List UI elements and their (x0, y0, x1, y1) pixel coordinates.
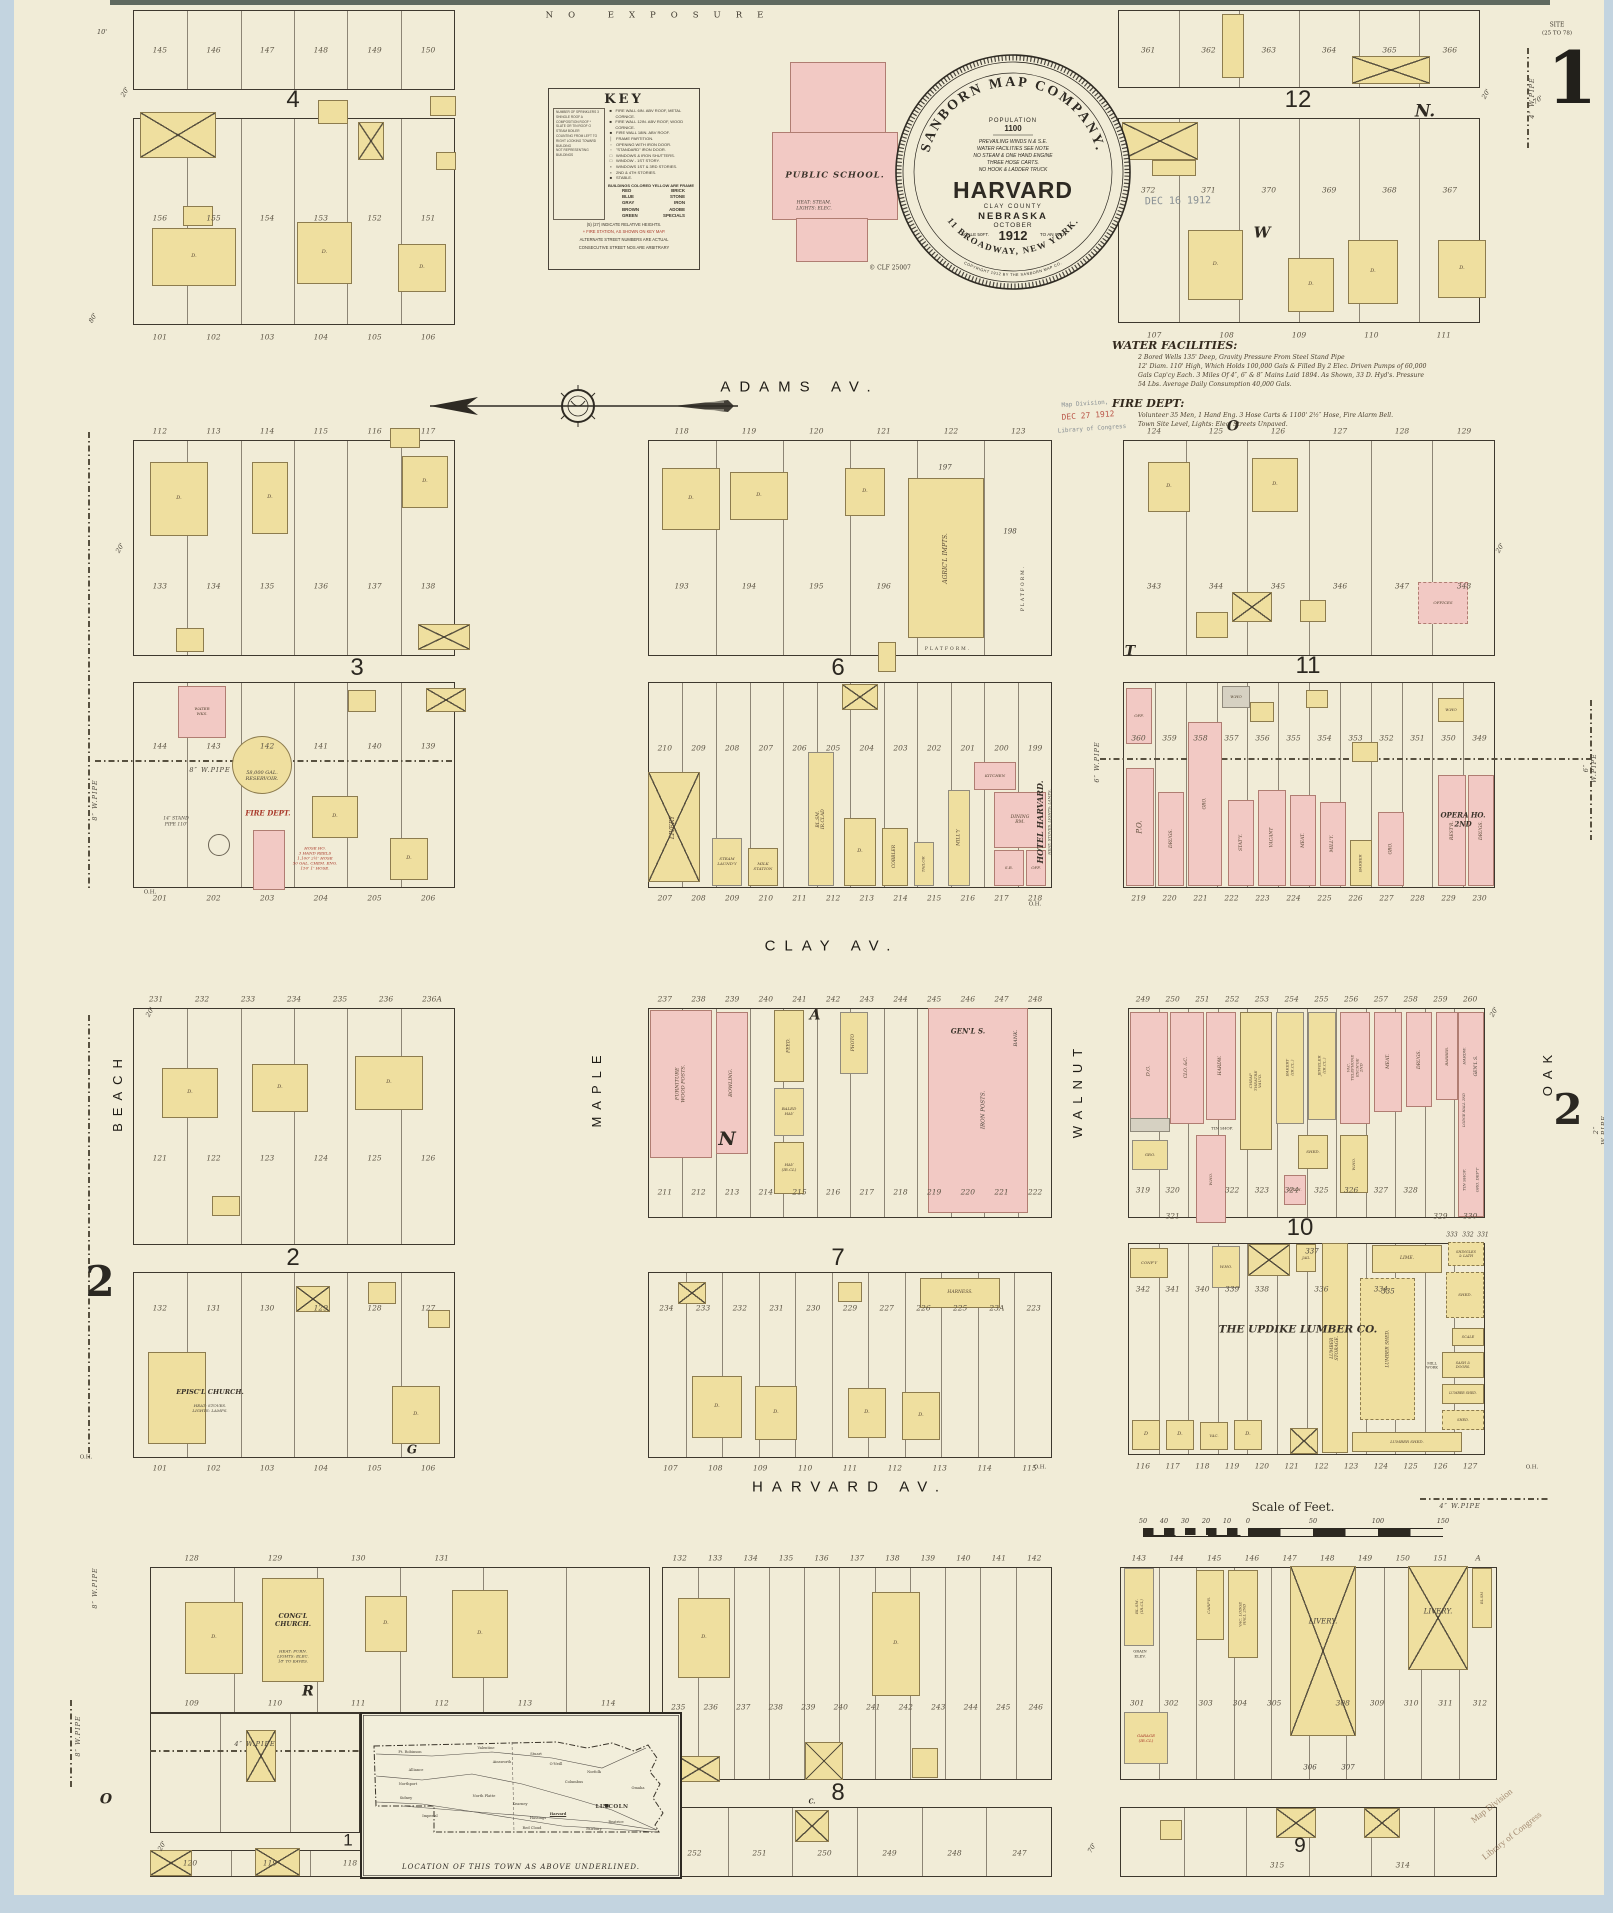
building-label: OFF. (1031, 866, 1040, 871)
building (436, 152, 456, 170)
building-label: D. (386, 1080, 391, 1086)
lot-number: 213 (860, 894, 874, 903)
lot-number: 357 (1224, 734, 1238, 743)
key-text: ■ (608, 175, 614, 181)
building (805, 1742, 843, 1780)
water-pipe-line (88, 1015, 90, 1458)
building-label: BL.SM (1480, 1592, 1484, 1604)
inset-town: Ainsworth (493, 1760, 512, 1764)
seal-info: WATER FACILITIES SEE NOTE (977, 146, 1050, 152)
lot-number: 337 (1305, 1248, 1318, 1257)
lot-number: 148 (1320, 1554, 1334, 1563)
lot-number: 128 (184, 1554, 198, 1563)
lot-number: 248 (947, 1849, 961, 1858)
lot-number: 302 (1164, 1699, 1178, 1708)
building: BL.SM. IR.CLAD (808, 752, 834, 886)
lot-number: 238 (691, 995, 705, 1004)
lot-divider (986, 1808, 987, 1876)
building (678, 1282, 706, 1304)
map-key: KEY NUMBER OF SPRINKLERS 3SHINGLE ROOF A… (548, 88, 700, 270)
public-school (796, 218, 868, 262)
lot-number: 110 (268, 1699, 282, 1708)
lot-divider (1247, 441, 1248, 655)
map-label: 20' (1480, 88, 1492, 101)
map-label: O.H. (144, 890, 156, 897)
building: VAC. (1200, 1422, 1228, 1450)
lot-number: 124 (314, 1154, 328, 1163)
lot-number: 323 (1255, 1186, 1269, 1195)
lot-number: 225 (1317, 894, 1331, 903)
lot-divider (1179, 11, 1180, 87)
sheet-number-right: 2 (1553, 1084, 1582, 1137)
building-label: D. (857, 849, 862, 855)
building-label: D. (1166, 484, 1171, 490)
lot-number: 139 (421, 742, 435, 751)
building: GRO. (1132, 1140, 1168, 1170)
lot-divider (734, 1568, 735, 1779)
lot-number: 348 (1457, 582, 1471, 591)
updike-lumber-label: THE UPDIKE LUMBER CO. (1219, 1323, 1378, 1336)
lot-number: 199 (1028, 744, 1042, 753)
lot-divider (566, 1568, 567, 1712)
lot-number: 329 (1433, 1212, 1447, 1221)
building-label: BARBER. (1445, 1047, 1450, 1066)
building: HAY (IR.CL) (774, 1142, 804, 1194)
building-label: KITCHEN (985, 774, 1005, 779)
sheet-number-left: 2 (85, 1256, 114, 1309)
building-label: D. (477, 1631, 482, 1637)
sanborn-map-sheet: 1451461471481491501561551541531521511011… (0, 0, 1613, 1913)
lot-number: 134 (206, 582, 220, 591)
lot-number: 131 (434, 1554, 448, 1563)
episcopal-church-label: EPISC'L CHURCH. (176, 1388, 244, 1396)
dwelling: D. (162, 1068, 218, 1118)
lot-number: 130 (260, 1304, 274, 1313)
lot-number: 197 (938, 464, 951, 473)
water-note-line: Gals Cap'cy Each. 3 Miles Of 4″, 6″ & 8″… (1138, 372, 1572, 381)
lot-number: 309 (1370, 1699, 1384, 1708)
building-label: P.O. (1136, 820, 1144, 833)
lumber-shed: LUMBER SHED. (1352, 1432, 1462, 1452)
lot-divider (187, 11, 188, 89)
block-number-6: 6 (831, 653, 844, 683)
lot-number: 143 (206, 742, 220, 751)
map-label: 20' (1488, 1006, 1500, 1019)
lot-number: 138 (421, 582, 435, 591)
lot-number: 103 (260, 1464, 274, 1473)
building-label: GRO. (1145, 1153, 1156, 1158)
lot-number: 255 (1314, 995, 1328, 1004)
building-label: W.HO. (1352, 1158, 1357, 1171)
lot-number: 209 (725, 894, 739, 903)
congregational-church-label: CONG'L CHURCH. (275, 1612, 311, 1628)
dwelling: D. (312, 796, 358, 838)
dwelling: D. (355, 1056, 423, 1110)
general-store-label: GEN'L S. (951, 1028, 985, 1037)
lot-number: 218 (893, 1188, 907, 1197)
lot-number: 145 (153, 46, 167, 55)
block-number-11: 11 (1296, 651, 1321, 681)
lot-number: 252 (687, 1849, 701, 1858)
building: TAILOR (914, 842, 934, 886)
lot-number: 126 (421, 1154, 435, 1163)
lot-number: 346 (1333, 582, 1347, 591)
water-pipe-label: 6″ W.PIPE (1582, 753, 1598, 783)
lot-number: 210 (759, 894, 773, 903)
lot-number: 252 (1225, 995, 1239, 1004)
scale-of-feet: Scale of Feet. 5040302010050100150 (1128, 1500, 1458, 1548)
building-label: SHED. (1458, 1293, 1471, 1298)
building-label: SCALE (1462, 1335, 1474, 1339)
inset-town: Columbus (565, 1780, 583, 1784)
lot-number: 240 (759, 995, 773, 1004)
seal-info: NO HOOK & LADDER TRUCK (979, 167, 1048, 173)
building: CLO. &C. (1170, 1012, 1204, 1124)
map-label: G (407, 1443, 417, 1458)
building-label: COBBLER (892, 845, 897, 868)
lot-number: 106 (421, 333, 435, 342)
inset-town: LINCOLN (595, 1804, 628, 1810)
lot-number: 312 (1473, 1699, 1487, 1708)
lot-number: 322 (1225, 1186, 1239, 1195)
building (1364, 1808, 1400, 1838)
building-label: LUMBER SHED. (1385, 1330, 1390, 1368)
building-label: VAC. TELEPHONE EXCH'GE 2ND (1346, 1054, 1363, 1082)
scale-tick: 50 (1139, 1517, 1147, 1525)
map-label: T (1125, 643, 1135, 661)
inset-town: Red Cloud (523, 1826, 542, 1830)
dwelling: D. (678, 1598, 730, 1678)
lot-number: 210 (658, 744, 672, 753)
building-label: BL.SM. (IR.CL) (1134, 1600, 1143, 1615)
building-label: MEAT. (1385, 1055, 1390, 1070)
building-label: D. (893, 1641, 898, 1647)
building-label: D. (1370, 269, 1375, 275)
lot-number: 118 (343, 1859, 357, 1868)
lot-number: 355 (1286, 734, 1300, 743)
map-label: HEAT: STOVES. LIGHTS: LAMPS. (1048, 789, 1053, 854)
map-label: TIN SHOP. (1211, 1126, 1233, 1131)
building (358, 122, 384, 160)
lot-divider (1184, 1808, 1185, 1876)
lot-divider (1432, 683, 1433, 887)
water-note-line: 12' Diam. 110' High, Which Holds 100,000… (1138, 363, 1572, 372)
lot-divider (220, 1714, 221, 1832)
map-label: HEAT: STEAM. LIGHTS: ELEC. (796, 200, 832, 211)
building-label: HARDW. (1218, 1056, 1223, 1075)
lot-number: 151 (421, 214, 435, 223)
lot-number: 111 (843, 1464, 857, 1473)
building-label: CLO. &C. (1184, 1057, 1189, 1078)
street-harvard-av: HARVARD AV. (752, 1479, 948, 1498)
building-label: PHOTO (851, 1034, 856, 1051)
lot-divider (728, 1808, 729, 1876)
lot-number: 233 (241, 995, 255, 1004)
furniture-store: FURNITURE WOOD POSTS. (650, 1010, 712, 1158)
lot-number: 324 (1284, 1186, 1298, 1195)
lot-number: 226 (916, 1304, 930, 1313)
building: JEWELER (IR.CL.) (1308, 1012, 1336, 1120)
block-number-7: 7 (831, 1243, 844, 1273)
inset-town: North Platte (473, 1794, 496, 1798)
building-label: STAT'Y. (1238, 835, 1243, 852)
lot-number: 145 (1207, 1554, 1221, 1563)
fire-dept-label: FIRE DEPT. (245, 810, 290, 819)
key-text: FIRE WALL 6IN. ABV ROOF, METAL CORNICE. (616, 108, 695, 119)
dwelling: D. (730, 472, 788, 520)
building (1300, 600, 1326, 622)
building: SHINGLES & LATH (1448, 1242, 1484, 1266)
lot-divider (1307, 1244, 1308, 1454)
lot-number: 147 (260, 46, 274, 55)
building-label: FEED. (786, 1039, 791, 1054)
building: STEAM LAUND'Y (712, 838, 742, 886)
lot-number: 125 (367, 1154, 381, 1163)
lot-number: 253 (1255, 995, 1269, 1004)
lot-number: 246 (1029, 1703, 1043, 1712)
lot-number: 232 (195, 995, 209, 1004)
key-footer: ALTERNATE STREET NUMBERS ARE ACTUAL (553, 237, 695, 243)
lot-number: 248 (1028, 995, 1042, 1004)
lot-number: 363 (1262, 46, 1276, 55)
map-label: C. (809, 1798, 816, 1806)
public-school (790, 62, 886, 134)
lot-number: 109 (184, 1699, 198, 1708)
dwelling: D. (365, 1596, 407, 1652)
lot-number: 235 (333, 995, 347, 1004)
key-color-row: GREENSPECIALS (608, 213, 695, 219)
lot-number: 132 (153, 1304, 167, 1313)
lot-number: 356 (1255, 734, 1269, 743)
key-items: ■FIRE WALL 6IN. ABV ROOF, METAL CORNICE.… (608, 108, 695, 181)
building (1196, 612, 1228, 638)
lot-number: 306 (1303, 1764, 1316, 1773)
dwelling: D. (150, 462, 208, 536)
city-block (133, 1008, 455, 1245)
lot-number: 148 (314, 46, 328, 55)
lot-number: 150 (1396, 1554, 1410, 1563)
lot-divider (1186, 683, 1187, 887)
lot-number: 133 (708, 1554, 722, 1563)
building: GRO. (1188, 722, 1222, 886)
lot-divider (1155, 683, 1156, 887)
water-pipe-label: 6″ W.PIPE (1093, 741, 1101, 782)
water-pipe-label: 4″ W.PIPE (234, 1740, 275, 1748)
map-label: LODGE HALL 2ND (1462, 1093, 1466, 1127)
lot-number: 132 (673, 1554, 687, 1563)
lot-number: 350 (1441, 734, 1455, 743)
lot-number: 204 (314, 894, 328, 903)
lot-number: 206 (421, 894, 435, 903)
building-label: D (1144, 1432, 1148, 1438)
water-note-line: 2 Bored Wells 135' Deep, Gravity Pressur… (1138, 354, 1572, 363)
map-label: HEAT: STOVES. LIGHTS: LAMPS. (192, 1403, 227, 1413)
block-number-2: 2 (286, 1243, 299, 1273)
building: D.G. (1130, 1012, 1168, 1130)
lot-number: 327 (1374, 1186, 1388, 1195)
building (1352, 56, 1430, 84)
lot-number: 205 (826, 744, 840, 753)
building-label: D. (1213, 262, 1218, 268)
building-label: D. (1245, 1432, 1250, 1438)
lot-number: 258 (1403, 995, 1417, 1004)
building-label: D.G. (1146, 1066, 1152, 1077)
building (390, 428, 420, 448)
lot-number: 139 (921, 1554, 935, 1563)
lot-number: 223 (1255, 894, 1269, 903)
building (428, 1310, 450, 1328)
block-number-1: 1 (343, 1829, 352, 1850)
lot-divider (401, 11, 402, 89)
building-label: LUMBER STORAGE. (1330, 1336, 1340, 1361)
lot-number: 335 (1381, 1288, 1394, 1297)
lot-number: 118 (1195, 1462, 1209, 1471)
lot-number: 219 (1131, 894, 1145, 903)
building-label: D. (191, 254, 196, 260)
lot-divider (294, 1273, 295, 1457)
stand-pipe (208, 834, 230, 856)
received-stamp: Map Division, (1061, 399, 1108, 410)
lot-number: 229 (1441, 894, 1455, 903)
lot-number: 212 (691, 1188, 705, 1197)
lot-number: 203 (893, 744, 907, 753)
lot-number: 202 (206, 894, 220, 903)
building-label: D. (918, 1413, 923, 1419)
dwelling: D. (1348, 240, 1398, 304)
building (795, 1810, 829, 1842)
lot-number: 129 (268, 1554, 282, 1563)
lot-number: 256 (1344, 995, 1358, 1004)
building (678, 1756, 720, 1782)
inset-town: Ft. Robinson (398, 1750, 421, 1754)
building: LIME. (1372, 1245, 1442, 1273)
lumber-shed: LUMBER SHED. (1360, 1278, 1415, 1420)
lot-number: 123 (260, 1154, 274, 1163)
lot-number: 207 (658, 894, 672, 903)
lot-number: 114 (601, 1699, 615, 1708)
lot-number: 237 (658, 995, 672, 1004)
building (878, 642, 896, 672)
lot-number: 196 (876, 582, 890, 591)
map-label: SITE (1550, 21, 1565, 29)
lot-number: 251 (1195, 995, 1209, 1004)
inset-town: Kearney (512, 1802, 527, 1806)
lot-number: 227 (1379, 894, 1393, 903)
building-label: D. (419, 265, 424, 271)
lot-number: 242 (826, 995, 840, 1004)
hotel-harvard-label: HOTEL HARVARD. (1035, 781, 1045, 864)
building (176, 628, 204, 652)
lot-number: 220 (961, 1188, 975, 1197)
key-fire-note: + FIRE STATION, AS SHOWN ON KEY MAP. (553, 229, 695, 235)
lot-number: 152 (367, 214, 381, 223)
lot-number: 354 (1317, 734, 1331, 743)
building-label: D. (1177, 1432, 1182, 1438)
building-label: VAC. (1209, 1434, 1218, 1438)
building-label: TAILOR (922, 856, 927, 872)
lot-number: 149 (367, 46, 381, 55)
building-label: BALED HAY (782, 1107, 797, 1116)
building-label: STEAM LAUND'Y (717, 857, 736, 866)
lot-number: 362 (1201, 46, 1215, 55)
reservoir-label: 58,000 GAL. RESERVOIR. (245, 770, 278, 783)
lot-number: 321 (1165, 1212, 1179, 1221)
key-text: ■ (608, 108, 614, 119)
lot-number: 247 (994, 995, 1008, 1004)
building: SHED. (1442, 1410, 1484, 1430)
dwelling: D. (1188, 230, 1243, 300)
street-oak: OAK (1540, 1048, 1556, 1096)
lot-number: 127 (421, 1304, 435, 1313)
building-label: SHINGLES & LATH (1456, 1250, 1476, 1258)
building: PHOTO (840, 1012, 868, 1074)
lot-number: 341 (1165, 1285, 1179, 1294)
lot-number: 352 (1379, 734, 1393, 743)
building (1306, 690, 1328, 708)
lot-number: 366 (1443, 46, 1457, 55)
garage-label: GARAGE (IR.CL) (1137, 1733, 1155, 1743)
seal-info: THREE HOSE CARTS. (987, 160, 1039, 166)
public-school-label: PUBLIC SCHOOL. (785, 171, 884, 182)
key-text: ■ (608, 119, 613, 130)
north-indicator: N. (1415, 101, 1435, 122)
dwelling: D. (152, 228, 236, 286)
building: DRUGS. (1468, 775, 1494, 886)
inset-town: Beatrice (608, 1820, 623, 1824)
lot-number: 259 (1433, 995, 1447, 1004)
lot-divider (1246, 1808, 1247, 1876)
dwelling: D. (1252, 458, 1298, 512)
seal-info: PREVAILING WINDS N.& S.E. (979, 139, 1047, 145)
lot-number: 103 (260, 333, 274, 342)
building (1152, 160, 1196, 176)
lot-number: 326 (1344, 1186, 1358, 1195)
lot-number: 214 (759, 1188, 773, 1197)
blacksmith: BL.SM. (IR.CL) (1124, 1568, 1154, 1646)
building-label: VACANT (1269, 828, 1274, 848)
map-label: PLATFORM. (1021, 565, 1027, 611)
location-inset-map: Ft. RobinsonValentineAinsworthStuartO'Ne… (360, 1712, 682, 1879)
lot-number: 119 (742, 427, 756, 436)
seal-population: 1100 (1004, 124, 1022, 133)
dwelling: D. (402, 456, 448, 508)
lot-number: 147 (1282, 1554, 1296, 1563)
lot-divider (347, 441, 348, 655)
building-label: LIME. (1400, 1256, 1414, 1261)
livery-label: LIVERY. (1424, 1608, 1453, 1617)
lot-number: 311 (1438, 1699, 1452, 1708)
building (418, 624, 470, 650)
key-legend-item: ■STABLE. (608, 175, 695, 181)
lot-divider (347, 1273, 348, 1457)
dwelling: D. (1234, 1420, 1262, 1450)
lot-number: 244 (893, 995, 907, 1004)
lot-number: 247 (1012, 1849, 1026, 1858)
building-label: D. (714, 1404, 719, 1410)
compass-rose-icon (428, 383, 743, 429)
water-pipe-line (88, 432, 90, 888)
lot-divider (984, 441, 985, 655)
lot-number: 136 (814, 1554, 828, 1563)
lot-number: 138 (885, 1554, 899, 1563)
lot-number: 310 (1404, 1699, 1418, 1708)
building: COBBLER (882, 828, 908, 886)
agricultural-implements: AGRIC'L IMPTS. (908, 478, 984, 638)
building (318, 100, 348, 124)
scale-ticks: 5040302010050100150 (1143, 1517, 1443, 1525)
building-label: BL.SM. IR.CLAD (816, 809, 826, 829)
map-label: O (100, 1791, 112, 1809)
